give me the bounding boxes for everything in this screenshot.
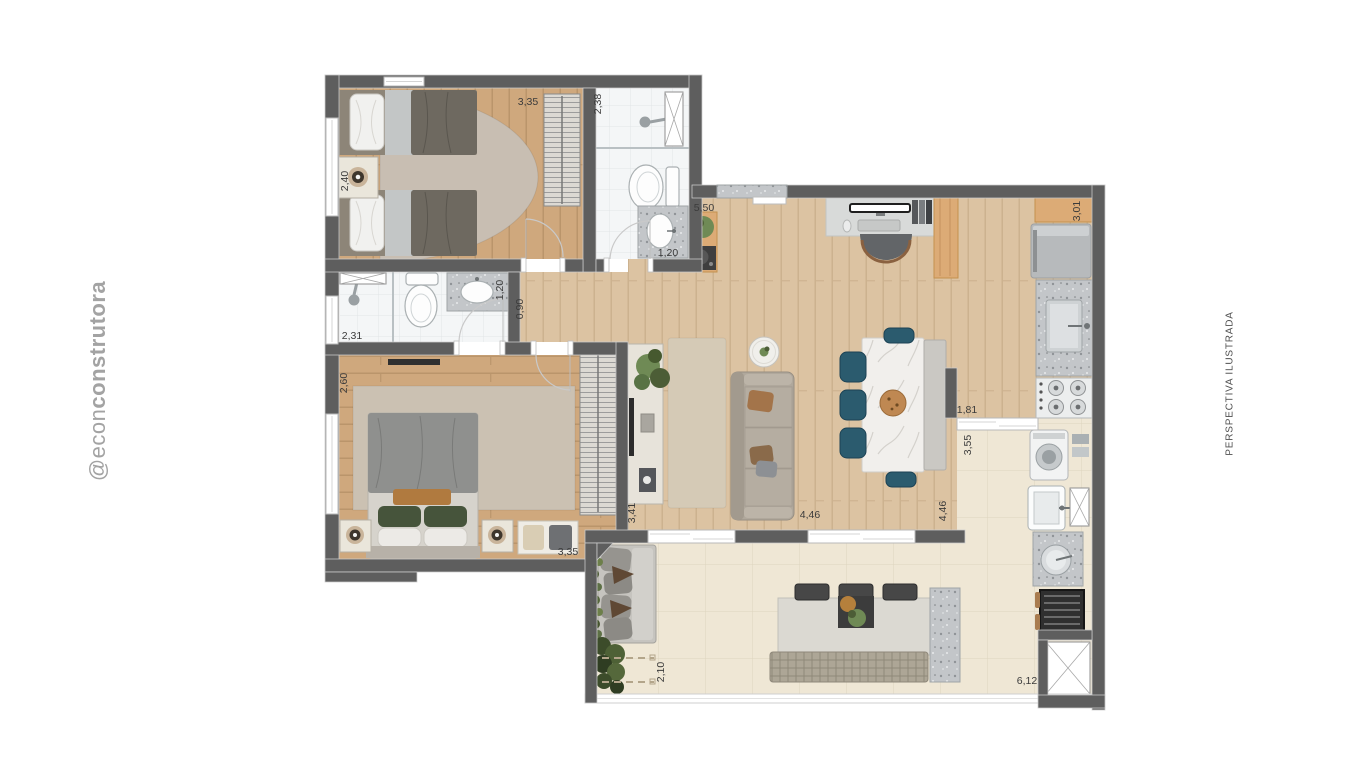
sofa-pillow — [747, 389, 775, 412]
dining-chair — [840, 352, 866, 382]
balcony-table — [778, 584, 932, 655]
balcony-bench — [770, 652, 928, 682]
entry-doormat — [717, 185, 787, 198]
balcony-sliding-door-2 — [808, 530, 915, 543]
dim-bedroom1-width: 3,35 — [518, 96, 539, 108]
sofa — [731, 372, 794, 520]
monitor-icon — [850, 204, 910, 212]
bedroom1-window — [326, 118, 338, 216]
twin-bed-2 — [338, 190, 477, 256]
laundry-tank-sink — [1028, 486, 1072, 530]
dim-bath1-width: 1,20 — [658, 247, 679, 259]
dim-bedroom1-depth: 2,40 — [339, 171, 351, 192]
coffee-table — [749, 337, 779, 367]
entry-door-leaf — [753, 197, 786, 204]
dining-chair — [840, 390, 866, 420]
hallway-floor — [518, 272, 692, 342]
perspective-note: PERSPECTIVA ILUSTRADA — [1225, 294, 1236, 474]
balcony-railing — [585, 694, 1092, 703]
centerpiece — [880, 390, 906, 416]
washing-machine-icon — [1030, 430, 1068, 480]
wood-partition — [934, 196, 958, 278]
dining-chair — [886, 472, 916, 487]
dining-chair — [840, 428, 866, 458]
kitchen-top-counter — [1035, 198, 1092, 222]
sofa-pillow — [755, 460, 777, 478]
toilet — [629, 165, 679, 209]
dim-balcony-width: 6,12 — [1017, 675, 1038, 687]
dining-bench — [924, 340, 946, 470]
toilet-2 — [405, 273, 438, 327]
dim-service-passage: 1,81 — [957, 404, 978, 416]
master-nightstand-left — [340, 520, 371, 552]
duct-shaft-icon — [1070, 488, 1089, 526]
brand-watermark: @econconstrutora — [85, 211, 111, 551]
tv-icon — [629, 398, 634, 456]
duct-shaft-icon — [665, 92, 683, 146]
balcony-chair — [883, 584, 917, 600]
dim-master-width: 3,35 — [558, 546, 579, 558]
dim-living-width: 4,46 — [800, 509, 821, 521]
dim-kitchen-counter: 3,01 — [1071, 201, 1083, 222]
dim-bath2-width: 2,31 — [342, 330, 363, 342]
fridge-icon — [1031, 224, 1091, 278]
living-rug — [668, 338, 726, 508]
shelf-niche-icon — [340, 273, 386, 284]
books-icon — [912, 200, 932, 224]
balcony-granite-table — [930, 588, 960, 682]
dim-living-depth: 4,46 — [937, 501, 949, 522]
duct-shaft-icon — [1046, 642, 1090, 694]
brand-handle-bold: construtora — [85, 281, 110, 409]
laundry-shelf-item — [1072, 447, 1089, 457]
dim-bath1-depth: 2,38 — [592, 94, 604, 115]
master-bed — [366, 413, 480, 558]
floor-plan-page: @econconstrutora PERSPECTIVA ILUSTRADA — [0, 0, 1366, 768]
dim-master-depth: 2,60 — [338, 373, 350, 394]
grill-icon — [1035, 590, 1084, 632]
twin-bed-1 — [338, 90, 477, 155]
dim-balcony-planter: 2,10 — [655, 662, 667, 683]
keyboard-icon — [858, 220, 900, 231]
dim-hall-segment: 1,20 — [494, 280, 506, 301]
bedroom1-vent — [384, 77, 424, 86]
dim-hall-width: 0,90 — [514, 299, 526, 320]
brand-handle-prefix: @econ — [85, 409, 110, 482]
mouse-icon — [843, 220, 851, 232]
balcony-sliding-door-1 — [648, 530, 735, 543]
dim-living-entry: 5,50 — [694, 202, 715, 214]
master-window — [326, 414, 338, 514]
service-sliding-door — [957, 418, 1038, 430]
kitchen-sink-counter — [1036, 280, 1092, 376]
balcony-chair — [795, 584, 829, 600]
stove-icon — [1036, 378, 1092, 418]
planter-shrubs-icon — [593, 637, 625, 694]
bath2-window — [326, 296, 338, 344]
dining-chair — [884, 328, 914, 343]
laundry-counter — [1033, 532, 1083, 586]
dim-service-depth: 3,55 — [962, 435, 974, 456]
dim-tv-wall: 3,41 — [626, 503, 638, 524]
outdoor-sofa — [598, 545, 656, 643]
master-tv-icon — [388, 359, 440, 365]
laundry-shelf-item — [1072, 434, 1089, 444]
floor-plan: 3,35 2,38 2,40 1,20 5,50 3,01 1,20 0,90 … — [0, 0, 1366, 768]
master-nightstand-right — [482, 520, 513, 552]
